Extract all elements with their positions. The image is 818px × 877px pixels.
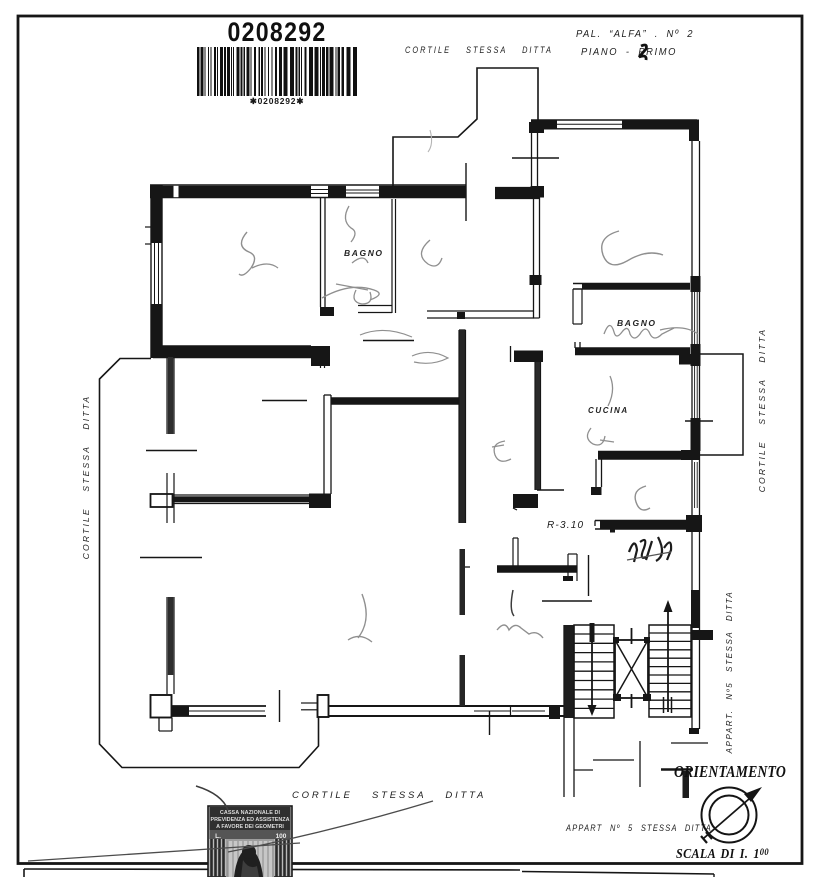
svg-text:APPART Nº 5 STESSA DITTA: APPART Nº 5 STESSA DITTA [565, 823, 712, 833]
svg-text:CUCINA: CUCINA [588, 406, 629, 415]
svg-text:PAL. “ALFA” . Nº 2: PAL. “ALFA” . Nº 2 [576, 28, 694, 40]
svg-text:CORTILE STESSA DITTA: CORTILE STESSA DITTA [292, 790, 486, 801]
svg-text:PIANO - PRIMO: PIANO - PRIMO [581, 46, 677, 58]
svg-text:CORTILE STESSA DITTA: CORTILE STESSA DITTA [81, 395, 91, 560]
svg-text:L.: L. [215, 833, 221, 840]
svg-text:CORTILE STESSA DITTA: CORTILE STESSA DITTA [757, 328, 767, 493]
svg-text:100: 100 [276, 833, 287, 840]
svg-text:CORTILE STESSA DITTA: CORTILE STESSA DITTA [405, 45, 553, 56]
svg-text:PREVIDENZA ED ASSISTENZA: PREVIDENZA ED ASSISTENZA [211, 817, 290, 823]
svg-text:ORIENTAMENTO: ORIENTAMENTO [674, 762, 786, 781]
svg-text:APPART. Nº5 STESSA DITTA: APPART. Nº5 STESSA DITTA [725, 591, 734, 755]
svg-text:0208292: 0208292 [228, 17, 327, 47]
svg-text:BAGNO: BAGNO [617, 318, 657, 328]
svg-text:R-3.10: R-3.10 [547, 520, 584, 531]
svg-text:SCALA DI I. 100: SCALA DI I. 100 [676, 846, 769, 861]
svg-text:A FAVORE DEI GEOMETRI: A FAVORE DEI GEOMETRI [216, 824, 284, 830]
svg-text:✱0208292✱: ✱0208292✱ [250, 96, 305, 106]
svg-text:BAGNO: BAGNO [344, 248, 384, 258]
svg-text:CASSA NAZIONALE DI: CASSA NAZIONALE DI [220, 810, 281, 816]
